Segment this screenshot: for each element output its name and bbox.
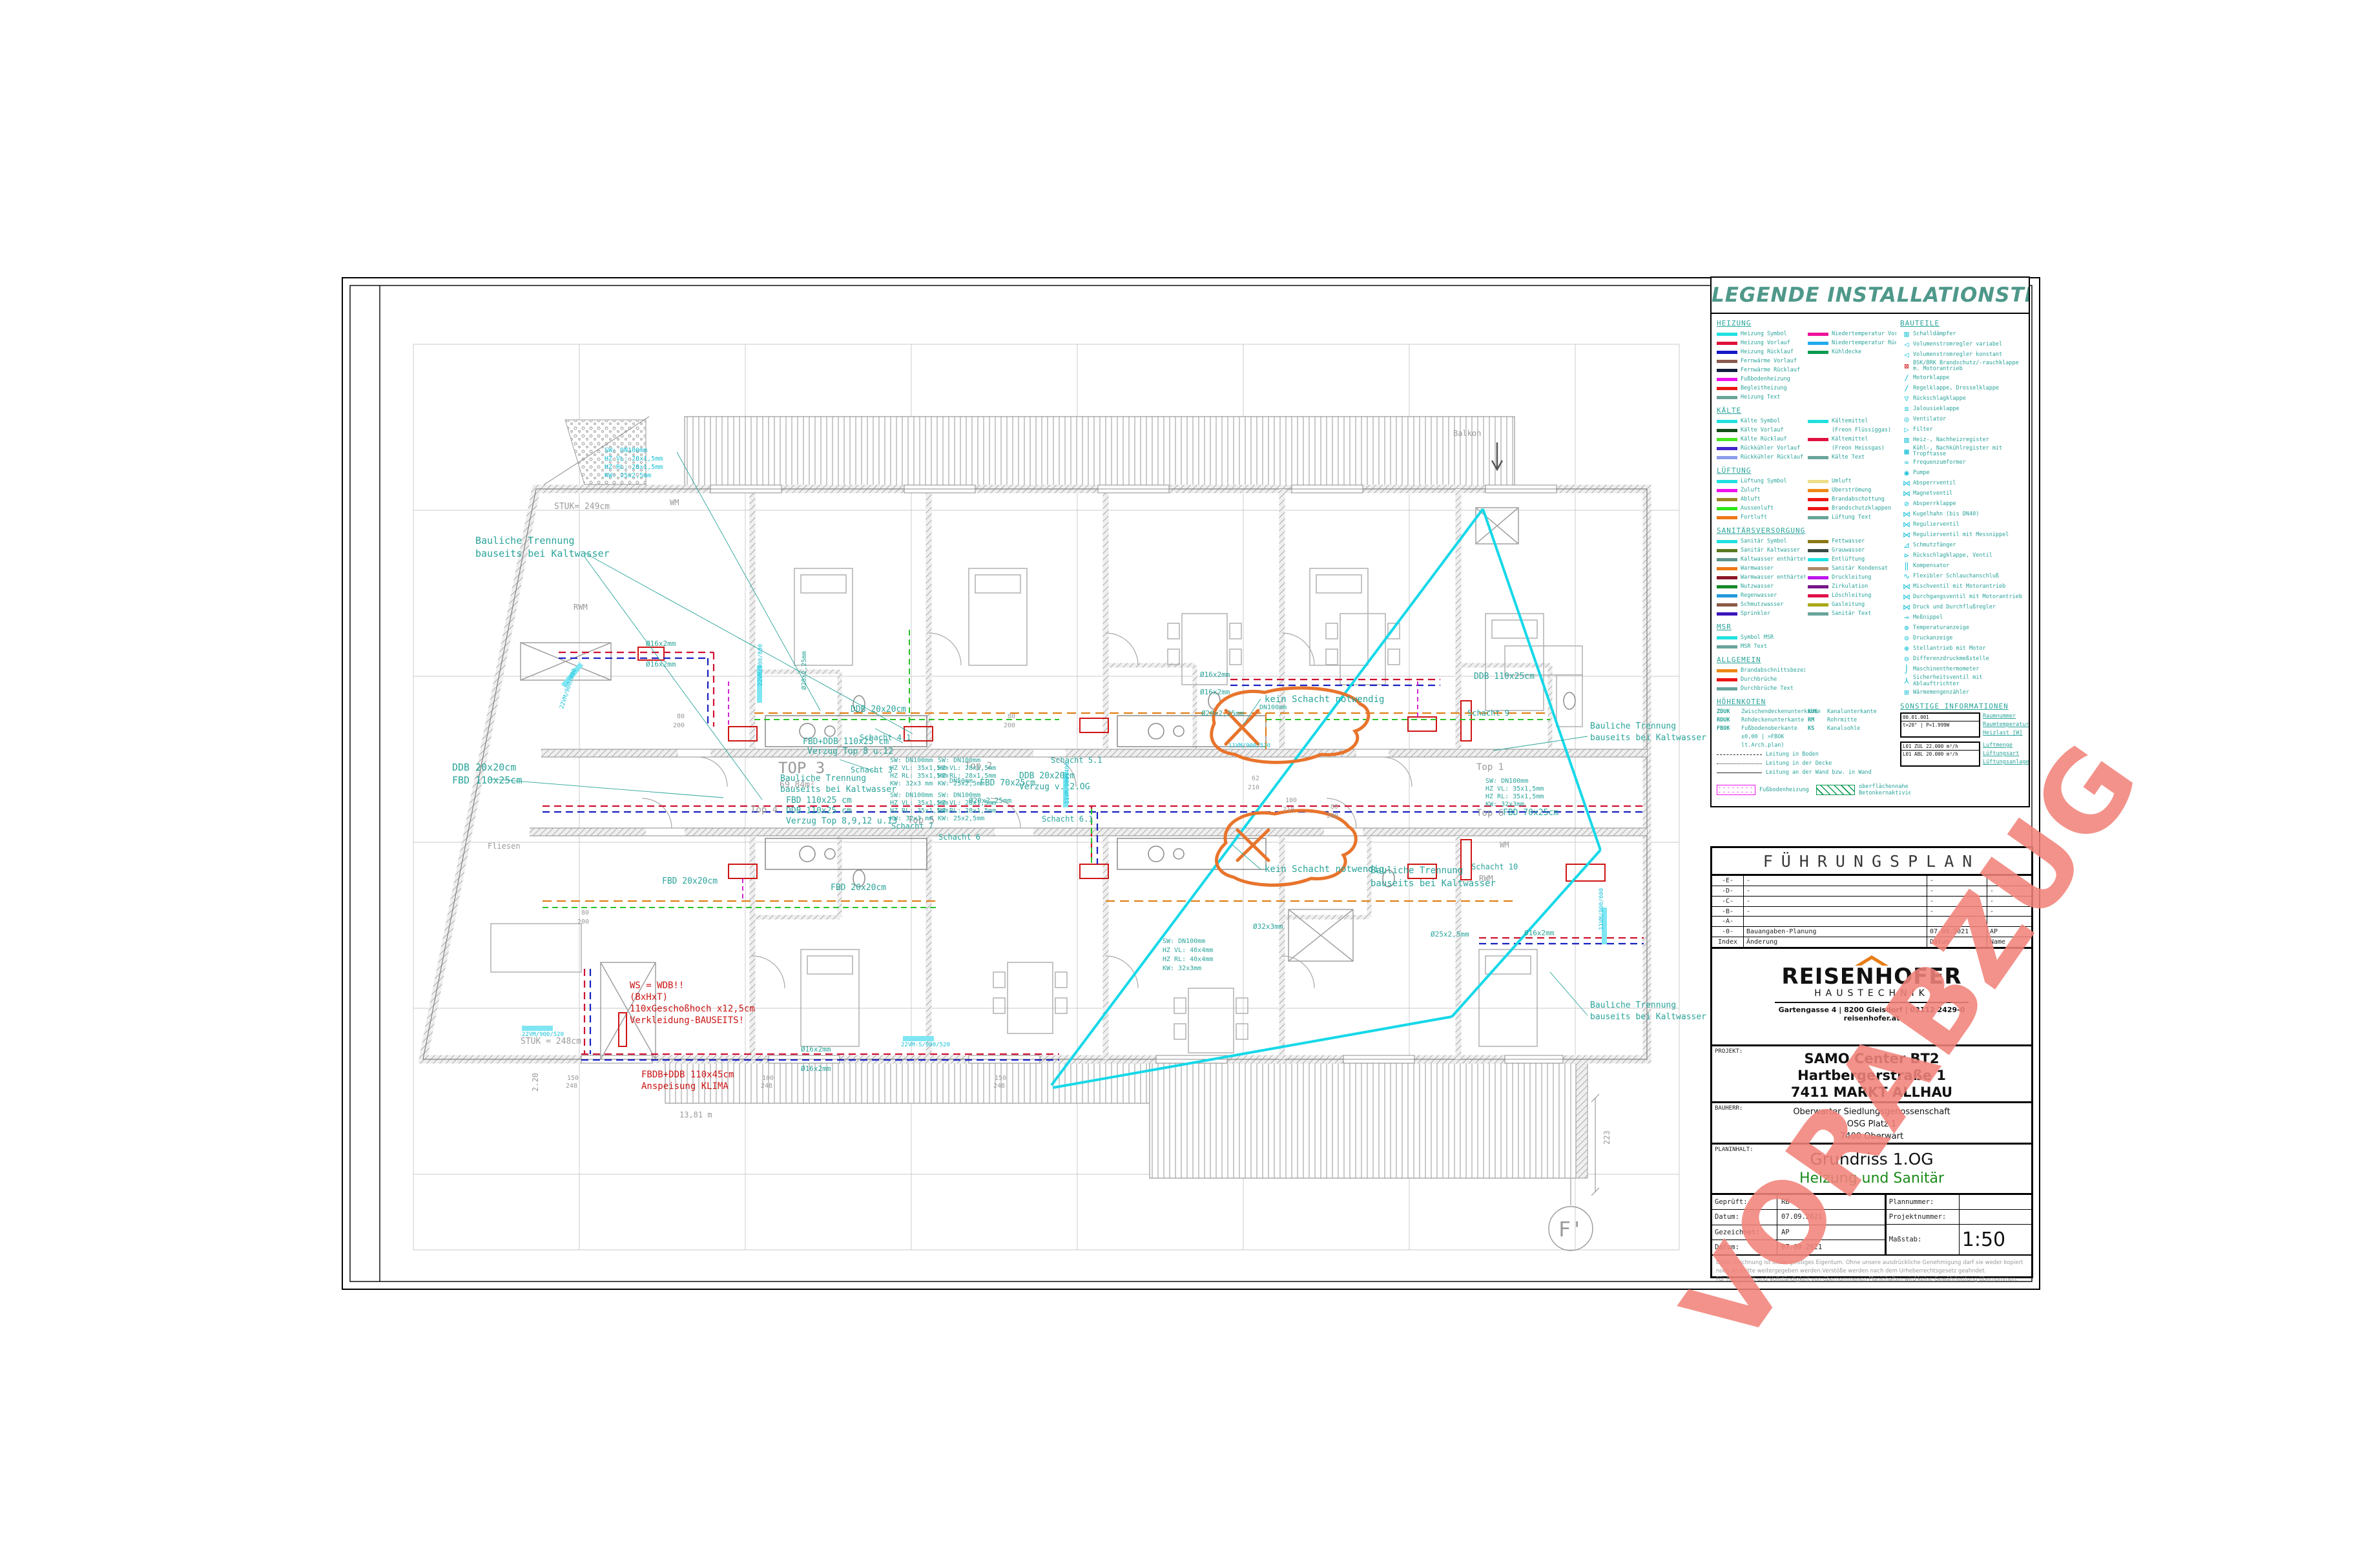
component-icon: ⊙: [1900, 634, 1913, 643]
bauteil-label: Temperaturanzeige: [1913, 625, 1969, 631]
info-box-row: L01 ZUL 22.000 m³/h: [1901, 743, 1979, 750]
legend-swatch: [1808, 549, 1828, 552]
bauteil-label: Durchgangsventil mit Motorantrieb: [1913, 594, 2022, 600]
plan-label: KW: 32x3mm: [1163, 965, 1201, 972]
plan-label: HZ VL: 40x4mm: [1163, 947, 1213, 954]
component-icon: ◉: [1900, 469, 1913, 477]
meta-key: Gezeichnet:: [1712, 1225, 1777, 1240]
component-icon: ⊿: [1900, 541, 1913, 550]
legend-item-label: Kälte Symbol: [1741, 418, 1780, 424]
plan-label: 200: [673, 722, 685, 729]
abbr-value: ±0,00 | =FBOK lt.Arch.plan): [1741, 733, 1805, 750]
bauteil-item: ▥Schalldämpfer: [1900, 329, 2025, 339]
legend-swatch: [1808, 558, 1828, 561]
legend-section-title: LÜFTUNG: [1717, 466, 1896, 475]
room-info-labels: RaumnummerRaumtemperatur Winter [°C]Heiz…: [1983, 712, 2025, 738]
legend-swatch: [1808, 333, 1828, 336]
legend-swatch: [1717, 678, 1737, 681]
bauteil-item: ∕Motorklappe: [1900, 373, 2025, 383]
bauteil-label: Mischventil mit Motorantrieb: [1913, 584, 2005, 590]
hoehenkoten-abbr: RMRohrmitte: [1808, 716, 1896, 725]
line-style-label: Leitung an der Wand bzw. in Wand: [1766, 769, 1872, 776]
plan-label: HZ VL: 28x1,5mm: [938, 765, 996, 772]
plan-label: HZ RL: 40x4mm: [1163, 956, 1213, 963]
meta-value: RB: [1777, 1195, 1885, 1209]
patch-item: Fußbodenheizung: [1717, 785, 1811, 795]
scale-key: Maßstab:: [1887, 1225, 1960, 1254]
planinhalt-line1: Grundriss 1.OG: [1712, 1150, 2031, 1169]
legend-item: (Freon Heissgas): [1808, 444, 1896, 453]
legend-swatch: [1808, 594, 1828, 597]
plan-label: 150: [567, 1075, 579, 1082]
bauteil-label: Meßnippel: [1913, 615, 1943, 621]
plan-label: 248: [761, 1083, 772, 1090]
legend-item: Lüftung Text: [1808, 513, 1896, 522]
plan-label: Verzug Top 8,9,12 u.13: [786, 816, 897, 826]
bauteil-label: Frequenzumformer: [1913, 460, 1966, 466]
legend-item: Kälte Rücklauf: [1717, 435, 1805, 444]
bauteil-label: Druck und Durchflußregler: [1913, 605, 1996, 610]
legend-item: Sprinkler: [1717, 609, 1805, 618]
disclaimer-line: Diese Zeichnung ist unser geistiges Eige…: [1716, 1259, 2027, 1267]
component-icon: ▷: [1900, 426, 1913, 434]
bauteile-section: BAUTEILE▥Schalldämpfer◁Volumenstromregle…: [1900, 319, 2025, 698]
fire-damper-icon: ⊠: [1900, 362, 1913, 371]
plan-label: DDB 110x25cm: [1474, 672, 1535, 681]
planinhalt-line2: Heizung und Sanitär: [1712, 1169, 2031, 1188]
plan-label: Bauliche Trennung: [475, 535, 575, 546]
leader-line: [1493, 736, 1588, 751]
bauteil-item: ⋈Durchgangsventil mit Motorantrieb: [1900, 592, 2025, 602]
index-cell: Datum: [1927, 937, 1987, 947]
legend-swatch: [1808, 456, 1828, 459]
drawing-sheet: F' Bauliche Trennungbauseits bei Kaltwas…: [0, 0, 2380, 1556]
hoehenkoten-abbr2-col: KUKKanalunterkanteRMRohrmitteKSKanalsohl…: [1808, 708, 1896, 750]
legend-item-label: Symbol MSR: [1741, 634, 1774, 641]
legend-item-label: Fernwärme Vorlauf: [1741, 358, 1797, 364]
abbr-value: Rohrmitte: [1827, 716, 1857, 725]
plan-label: FBD 20x20cm: [662, 877, 718, 886]
index-cell: Änderung: [1743, 937, 1927, 947]
plan-label: Schacht 6.1: [1042, 814, 1093, 824]
bauteil-label: Kompensator: [1913, 563, 1949, 569]
legend-column: Heizung SymbolHeizung VorlaufHeizung Rüc…: [1717, 329, 1805, 402]
plan-label: 100: [1285, 797, 1297, 804]
hoehenkoten-abbr: ZDUKZwischendeckenunterkante: [1717, 708, 1805, 716]
hoehenkoten-abbr: RDUKRohdeckenunterkante: [1717, 716, 1805, 725]
plan-label: 248: [566, 1083, 577, 1090]
legend-item-label: Sprinkler: [1741, 610, 1770, 617]
plan-label: Ø16x2mm: [1200, 688, 1230, 696]
index-row: -E----: [1712, 876, 2031, 886]
plan-label: Ø16x2mm: [801, 1045, 831, 1053]
legend-section-columns: Lüftung SymbolZuluftAbluftAussenluftFort…: [1717, 477, 1896, 522]
plan-label: KW: 32x3 mm: [890, 815, 933, 822]
bauteil-label: Stellantrieb mit Motor: [1913, 646, 1986, 652]
component-icon: ∕: [1900, 384, 1913, 393]
plan-label: DDB 20x20cm: [851, 705, 906, 714]
plan-label: 80: [581, 909, 589, 917]
bauteil-item: ⊸Meßnippel: [1900, 613, 2025, 623]
bauteil-item: ⋈Mischventil mit Motorantrieb: [1900, 582, 2025, 592]
plan-label: SW: DN100mm: [890, 757, 933, 764]
plan-label: 200: [577, 918, 589, 926]
plan-label: kein Schacht notwendig: [1265, 694, 1384, 705]
plan-label: DN100mm: [1259, 704, 1287, 711]
component-icon: ≈: [1900, 459, 1913, 467]
room-info-box: 00.01.001t=20° | P=1.999W: [1900, 712, 1980, 738]
legend-item-label: (Freon Heissgas): [1832, 445, 1885, 451]
legend-swatch: [1717, 516, 1737, 519]
legend-item-label: Rückkühler Vorlauf: [1741, 445, 1800, 451]
legend-item-label: Kältemittel: [1832, 436, 1868, 442]
plan-label: (BxHxT): [630, 992, 668, 1002]
plan-label: 69,84m²: [780, 780, 815, 790]
legend-swatch: [1808, 342, 1828, 345]
green-patch: [1816, 785, 1855, 795]
legend-item: Sanitär Symbol: [1717, 537, 1805, 546]
hoehenkoten-abbr: KSKanalsohle: [1808, 725, 1896, 733]
legend-item: Kälte Vorlauf: [1717, 426, 1805, 435]
bauteil-label: Regulierventil mit Messnippel: [1913, 532, 2009, 538]
legend-item-label: Rückkühler Rücklauf: [1741, 454, 1803, 461]
index-cell: -: [1987, 876, 2031, 886]
legend-item: Fernwärme Vorlauf: [1717, 357, 1805, 366]
component-icon: ⌡: [1900, 665, 1913, 674]
component-icon: ◁: [1900, 351, 1913, 359]
info-label: Heizlast [W]: [1983, 729, 2025, 738]
bauteil-item: ◎Ventilator: [1900, 415, 2025, 424]
bauteil-item: ∿Flexibler Schlauchanschluß: [1900, 572, 2025, 581]
bauteil-label: Ventilator: [1913, 417, 1946, 422]
meta-row: Plannummer:: [1887, 1195, 2031, 1209]
legend-swatch: [1717, 594, 1737, 597]
plan-label: 100: [762, 1075, 774, 1082]
plan-label: 80: [1330, 804, 1338, 811]
component-icon: ⊘: [1900, 500, 1913, 508]
legend-item: Kältemittel: [1808, 435, 1896, 444]
legend-item-label: Niedertemperatur Rücklauf: [1832, 340, 1896, 346]
legend-item-label: Aussenluft: [1741, 505, 1774, 512]
legend-item-label: Lüftung Text: [1832, 514, 1871, 521]
legend-section: SANITÄRSVERSORGUNGSanitär SymbolSanitär …: [1717, 526, 1896, 618]
bauherr-lines: Oberwarter SiedlungsgenossenschaftOSG Pl…: [1712, 1106, 2031, 1143]
legend-column: UmluftÜberströmungBrandabschottungBrands…: [1808, 477, 1896, 522]
plan-label: Ø16x2mm: [1200, 670, 1230, 679]
legend-item-label: Warmwasser: [1741, 565, 1774, 572]
legend-column: Niedertemperatur VorlaufNiedertemperatur…: [1808, 329, 1896, 402]
index-cell: -B-: [1712, 907, 1743, 917]
plan-label: KW: 32x3mm: [1485, 801, 1524, 808]
bauteil-item: ‖Kompensator: [1900, 561, 2025, 571]
index-row: IndexÄnderungDatumName: [1712, 937, 2031, 947]
index-cell: [1927, 917, 1987, 926]
legend-section: ALLGEMEINBrandabschnittsbezeichnungDurch…: [1717, 656, 1896, 693]
plan-label: 200: [1327, 813, 1338, 820]
index-cell: -E-: [1712, 876, 1743, 886]
meta-key: Projektnummer:: [1887, 1210, 1960, 1224]
titleblock-header-text: FÜHRUNGSPLAN: [1763, 852, 1981, 871]
line-style-label: Leitung in der Decke: [1766, 760, 1832, 767]
plan-label: bauseits bei Kaltwasser: [1590, 1012, 1706, 1022]
plan-label: Schacht 4.1: [860, 733, 911, 742]
line-style-item: Leitung in der Decke: [1717, 759, 1896, 768]
plan-label: bauseits bei Kaltwasser: [1371, 878, 1496, 889]
air-info: L01 ZUL 22.000 m³/hL01 ABL 20.000 m³/hLu…: [1900, 742, 2025, 767]
plan-label: 210: [1283, 806, 1294, 813]
legend-item: Kaltwasser enthärtet: [1717, 555, 1805, 564]
legend-item-label: Zuluft: [1741, 487, 1761, 493]
plan-label: 110xGeschoßhoch x12,5cm: [630, 1004, 755, 1014]
plan-label: bauseits bei Kaltwasser: [475, 548, 610, 559]
bauteil-item: ≡Jalousieklappe: [1900, 404, 2025, 414]
legend-section-columns: Kälte SymbolKälte VorlaufKälte RücklaufR…: [1717, 417, 1896, 462]
bauteil-item: ⊖Differenzdruckmeßstelle: [1900, 654, 2025, 664]
legend-panel: LEGENDE INSTALLATIONSTECHNIK HEIZUNGHeiz…: [1710, 276, 2030, 807]
index-row: -D----: [1712, 886, 2031, 896]
legend-item-label: Umluft: [1832, 478, 1852, 484]
bauteil-item: ⊛Stellantrieb mit Motor: [1900, 644, 2025, 654]
component-icon: ▥: [1900, 330, 1913, 338]
legend-item-label: Zirkulation: [1832, 583, 1868, 590]
legend-item: Kälte Symbol: [1717, 417, 1805, 426]
plan-label: Schacht 3: [851, 765, 893, 774]
plan-label: 11VM/900/600: [1599, 888, 1605, 930]
plan-label: Ø32x3mm: [1253, 922, 1283, 931]
plan-label: SW: DN100mm: [1485, 778, 1528, 785]
component-icon: ⋈: [1900, 583, 1913, 591]
abbr-key: RM: [1808, 716, 1827, 725]
legend-line-sections: HEIZUNGHeizung SymbolHeizung VorlaufHeiz…: [1717, 319, 1896, 801]
bauteil-item: ∕Regelklappe, Drosselklappe: [1900, 384, 2025, 393]
legend-item: Abluft: [1717, 495, 1805, 504]
air-info-labels: LuftmengeLüftungsartLüftungsanlagennumme…: [1983, 742, 2025, 767]
legend-section-columns: Heizung SymbolHeizung VorlaufHeizung Rüc…: [1717, 329, 1896, 402]
index-cell: -: [1927, 907, 1987, 917]
legend-swatch: [1808, 540, 1828, 543]
legend-item: Rückkühler Rücklauf: [1717, 453, 1805, 462]
legend-item: (Freon Flüssiggas): [1808, 426, 1896, 435]
legend-swatch: [1717, 360, 1737, 363]
legend-item: Niedertemperatur Rücklauf: [1808, 338, 1896, 348]
legend-swatch: [1717, 447, 1737, 450]
plan-label: Top 6: [1476, 808, 1504, 818]
plan-label: 13,81 m: [679, 1110, 712, 1119]
legend-item-label: Nutzwasser: [1741, 583, 1774, 590]
planinhalt-section: PLANINHALT: Grundriss 1.OG Heizung und S…: [1712, 1145, 2031, 1195]
bauteil-label: Filter: [1913, 427, 1933, 433]
meta-left-table: Geprüft:RBDatum:07.09.2021Gezeichnet:APD…: [1712, 1195, 1887, 1254]
legend-item: Begleitheizung: [1717, 384, 1805, 393]
legend-swatch: [1717, 333, 1737, 336]
legend-swatch: [1717, 378, 1737, 381]
component-icon: ▽: [1900, 395, 1913, 403]
component-icon: ⋈: [1900, 603, 1913, 612]
legend-swatch: [1808, 576, 1828, 579]
plan-label: STUK= 249cm: [554, 502, 610, 512]
legend-swatch: [1717, 369, 1737, 372]
abbr-value: Rohdeckenunterkante: [1741, 716, 1804, 725]
bauteil-item: ◉Pumpe: [1900, 468, 2025, 478]
meta-value: [1960, 1195, 2031, 1209]
legend-item: Zirkulation: [1808, 582, 1896, 591]
component-icon: ∕: [1900, 374, 1913, 382]
bauteil-item: ⋈Absperrventil: [1900, 479, 2025, 488]
component-icon: ⋈: [1900, 490, 1913, 498]
legend-section-title: KÄLTE: [1717, 406, 1896, 415]
legend-item: Fußbodenheizung: [1717, 375, 1805, 384]
disclaimer-line: Für Richtigkeit und Vollständigkeit von …: [1716, 1276, 2027, 1284]
legend-swatch: [1717, 498, 1737, 501]
legend-item: Rückkühler Vorlauf: [1717, 444, 1805, 453]
legend-item: Kälte Text: [1808, 453, 1896, 462]
plan-label: FBD 70x25cm: [1503, 808, 1558, 818]
plan-label: 248: [993, 1083, 1005, 1090]
abbr-key: RDUK: [1717, 716, 1741, 725]
plan-label: HZ RL: 28x1,5mm: [938, 807, 996, 814]
legend-item: Brandabschottung: [1808, 495, 1896, 504]
plan-label: Top 1: [1476, 762, 1504, 773]
bauteil-label: Regulierventil: [1913, 522, 1960, 528]
legend-item: Durchbrüche: [1717, 675, 1805, 684]
hoehenkoten-abbr-col: ZDUKZwischendeckenunterkanteRDUKRohdecke…: [1717, 708, 1805, 750]
bauherr-label: BAUHERR:: [1715, 1105, 1743, 1112]
index-cell: -0-: [1712, 927, 1743, 937]
plan-label: DDB 110x25 cm: [786, 806, 852, 816]
bauteil-item: ⊳Rückschlagklappe, Ventil: [1900, 551, 2025, 561]
hoehenkoten-abbr: ±0,00 | =FBOK lt.Arch.plan): [1717, 733, 1805, 750]
bauteil-label: Differenzdruckmeßstelle: [1913, 656, 1989, 662]
plan-label: Ø16x2mm: [801, 1064, 831, 1073]
index-row: -0-Bauangaben-Planung07.09.2021AP: [1712, 926, 2031, 937]
plan-label: FBD 20x20cm: [831, 883, 886, 893]
legend-item: Nutzwasser: [1717, 582, 1805, 591]
bauherr-line: OSG Platz 1: [1712, 1118, 2031, 1130]
svg-text:F': F': [1558, 1217, 1584, 1241]
abbr-key: ZDUK: [1717, 708, 1741, 716]
legend-item-label: Warmwasser enthärtet: [1741, 574, 1805, 581]
bauteil-item: ▽Rückschlagklappe: [1900, 394, 2025, 404]
legend-section-title: HEIZUNG: [1717, 319, 1896, 327]
bauteil-item: ⋈Kugelhahn (bis DN40): [1900, 510, 2025, 519]
bauteil-item: ⊘Absperrklappe: [1900, 499, 2025, 509]
leader-line: [491, 779, 723, 798]
legend-swatch: [1808, 351, 1828, 354]
bauteil-label: Wärmemengenzähler: [1913, 690, 1969, 696]
component-icon: ⋈: [1900, 510, 1913, 519]
legend-column: BrandabschnittsbezeichnungDurchbrücheDur…: [1717, 666, 1805, 693]
legend-item-label: Entlüftung: [1832, 556, 1865, 563]
legend-swatch: [1808, 480, 1828, 483]
plan-label: bauseits bei Kaltwasser: [1590, 733, 1706, 743]
index-cell: -: [1743, 886, 1927, 896]
legend-swatch: [1717, 549, 1737, 552]
bauteil-label: Magnetventil: [1913, 491, 1952, 497]
scale-row: Maßstab:1:50: [1887, 1224, 2031, 1254]
plan-label: Ø16x2mm: [646, 639, 676, 648]
index-cell: AP: [1987, 927, 2031, 937]
legend-item-label: Überströmung: [1832, 487, 1871, 493]
plan-label: 22VM/900/800: [559, 668, 578, 710]
index-cell: Bauangaben-Planung: [1743, 927, 1927, 937]
legend-item-label: Fettwasser: [1832, 538, 1865, 545]
legend-item-label: Kältemittel: [1832, 418, 1868, 424]
info-label: Raumnummer: [1983, 712, 2025, 721]
abbr-value: Kanalunterkante: [1827, 708, 1877, 716]
plan-label: WS = WDB!!: [630, 980, 684, 991]
index-row: -A-: [1712, 916, 2031, 926]
index-cell: 07.09.2021: [1927, 927, 1987, 937]
plan-label: Anspeisung KLIMA: [641, 1081, 729, 1092]
logo-divider: [1775, 1002, 1969, 1003]
plan-label: 80: [1008, 713, 1015, 720]
legend-section: MSRSymbol MSRMSR Text: [1717, 623, 1896, 651]
component-icon: ▨: [1900, 436, 1913, 444]
plan-label: Schacht 5.1: [1051, 756, 1102, 765]
index-cell: Index: [1712, 937, 1743, 947]
legend-item-label: Regenwasser: [1741, 592, 1777, 599]
bauteil-item: ⊕Temperaturanzeige: [1900, 623, 2025, 633]
bauherr-section: BAUHERR: Oberwarter Siedlungsgenossensch…: [1712, 1103, 2031, 1145]
legend-item: Brandschutzklappen: [1808, 504, 1896, 513]
patch-label: Fußbodenheizung: [1759, 787, 1811, 793]
plan-label: 62: [1252, 775, 1259, 782]
legend-swatch: [1717, 576, 1737, 579]
legend-item: Warmwasser enthärtet: [1717, 573, 1805, 582]
meta-row: Geprüft:RB: [1712, 1195, 1885, 1209]
plan-label: Ø20x2,25mm: [1201, 709, 1245, 718]
plan-label: Ø16x2mm: [1524, 929, 1555, 937]
logo-website: reisenhofer.at: [1712, 1014, 2031, 1022]
bauteil-label: Maschinenthermometer: [1913, 667, 1979, 672]
legend-column: Sanitär SymbolSanitär KaltwasserKaltwass…: [1717, 537, 1805, 618]
index-cell: -A-: [1712, 917, 1743, 926]
plan-label: HZ RL: 28x1,5mm: [605, 464, 663, 471]
bauteil-label: Sicherheitsventil mit Ablauftrichter: [1913, 675, 2025, 687]
legend-item: Sanitär Kaltwasser: [1717, 546, 1805, 555]
legend-item: Regenwasser: [1717, 591, 1805, 600]
info-label: Lüftungsart: [1983, 750, 2025, 758]
bauteile-title: BAUTEILE: [1900, 319, 2025, 327]
bauteil-label: Pumpe: [1913, 470, 1930, 476]
legend-swatch: [1717, 645, 1737, 648]
component-icon: ▦: [1900, 448, 1913, 456]
plan-label: SW: DN100mm: [605, 447, 647, 454]
meta-row: Projektnummer:: [1887, 1209, 2031, 1224]
legend-swatch: [1717, 351, 1737, 354]
company-logo: REISENHOFER HAUSTECHNIK Gartengasse 4 | …: [1712, 955, 2031, 1046]
legend-item: Zuluft: [1717, 486, 1805, 495]
legend-swatch: [1808, 612, 1828, 616]
legend-item: Durchbrüche Text: [1717, 684, 1805, 693]
legend-bauteile-section: BAUTEILE▥Schalldämpfer◁Volumenstromregle…: [1900, 319, 2025, 801]
plan-label: FBDB+DDB 110x45cm: [641, 1070, 734, 1080]
abbr-key: [1717, 733, 1741, 750]
projekt-line: SAMO Center BT2: [1712, 1050, 2031, 1067]
index-cell: -D-: [1712, 886, 1743, 896]
plan-label: WM: [670, 498, 679, 507]
info-label: Raumtemperatur Winter [°C]: [1983, 721, 2025, 729]
legend-item-label: Brandabschnittsbezeichnung: [1741, 667, 1805, 674]
projekt-lines: SAMO Center BT2Hartbergerstraße 17411 MA…: [1712, 1050, 2031, 1101]
legend-item: Fettwasser: [1808, 537, 1896, 546]
component-icon: ⋈: [1900, 593, 1913, 601]
legend-column: Lüftung SymbolZuluftAbluftAussenluftFort…: [1717, 477, 1805, 522]
legend-item-label: Grauwasser: [1832, 547, 1865, 554]
legend-item-label: Kühldecke: [1832, 349, 1861, 355]
bauteil-label: Regelklappe, Drosselklappe: [1913, 386, 1999, 391]
line-style-sample: [1717, 763, 1762, 764]
